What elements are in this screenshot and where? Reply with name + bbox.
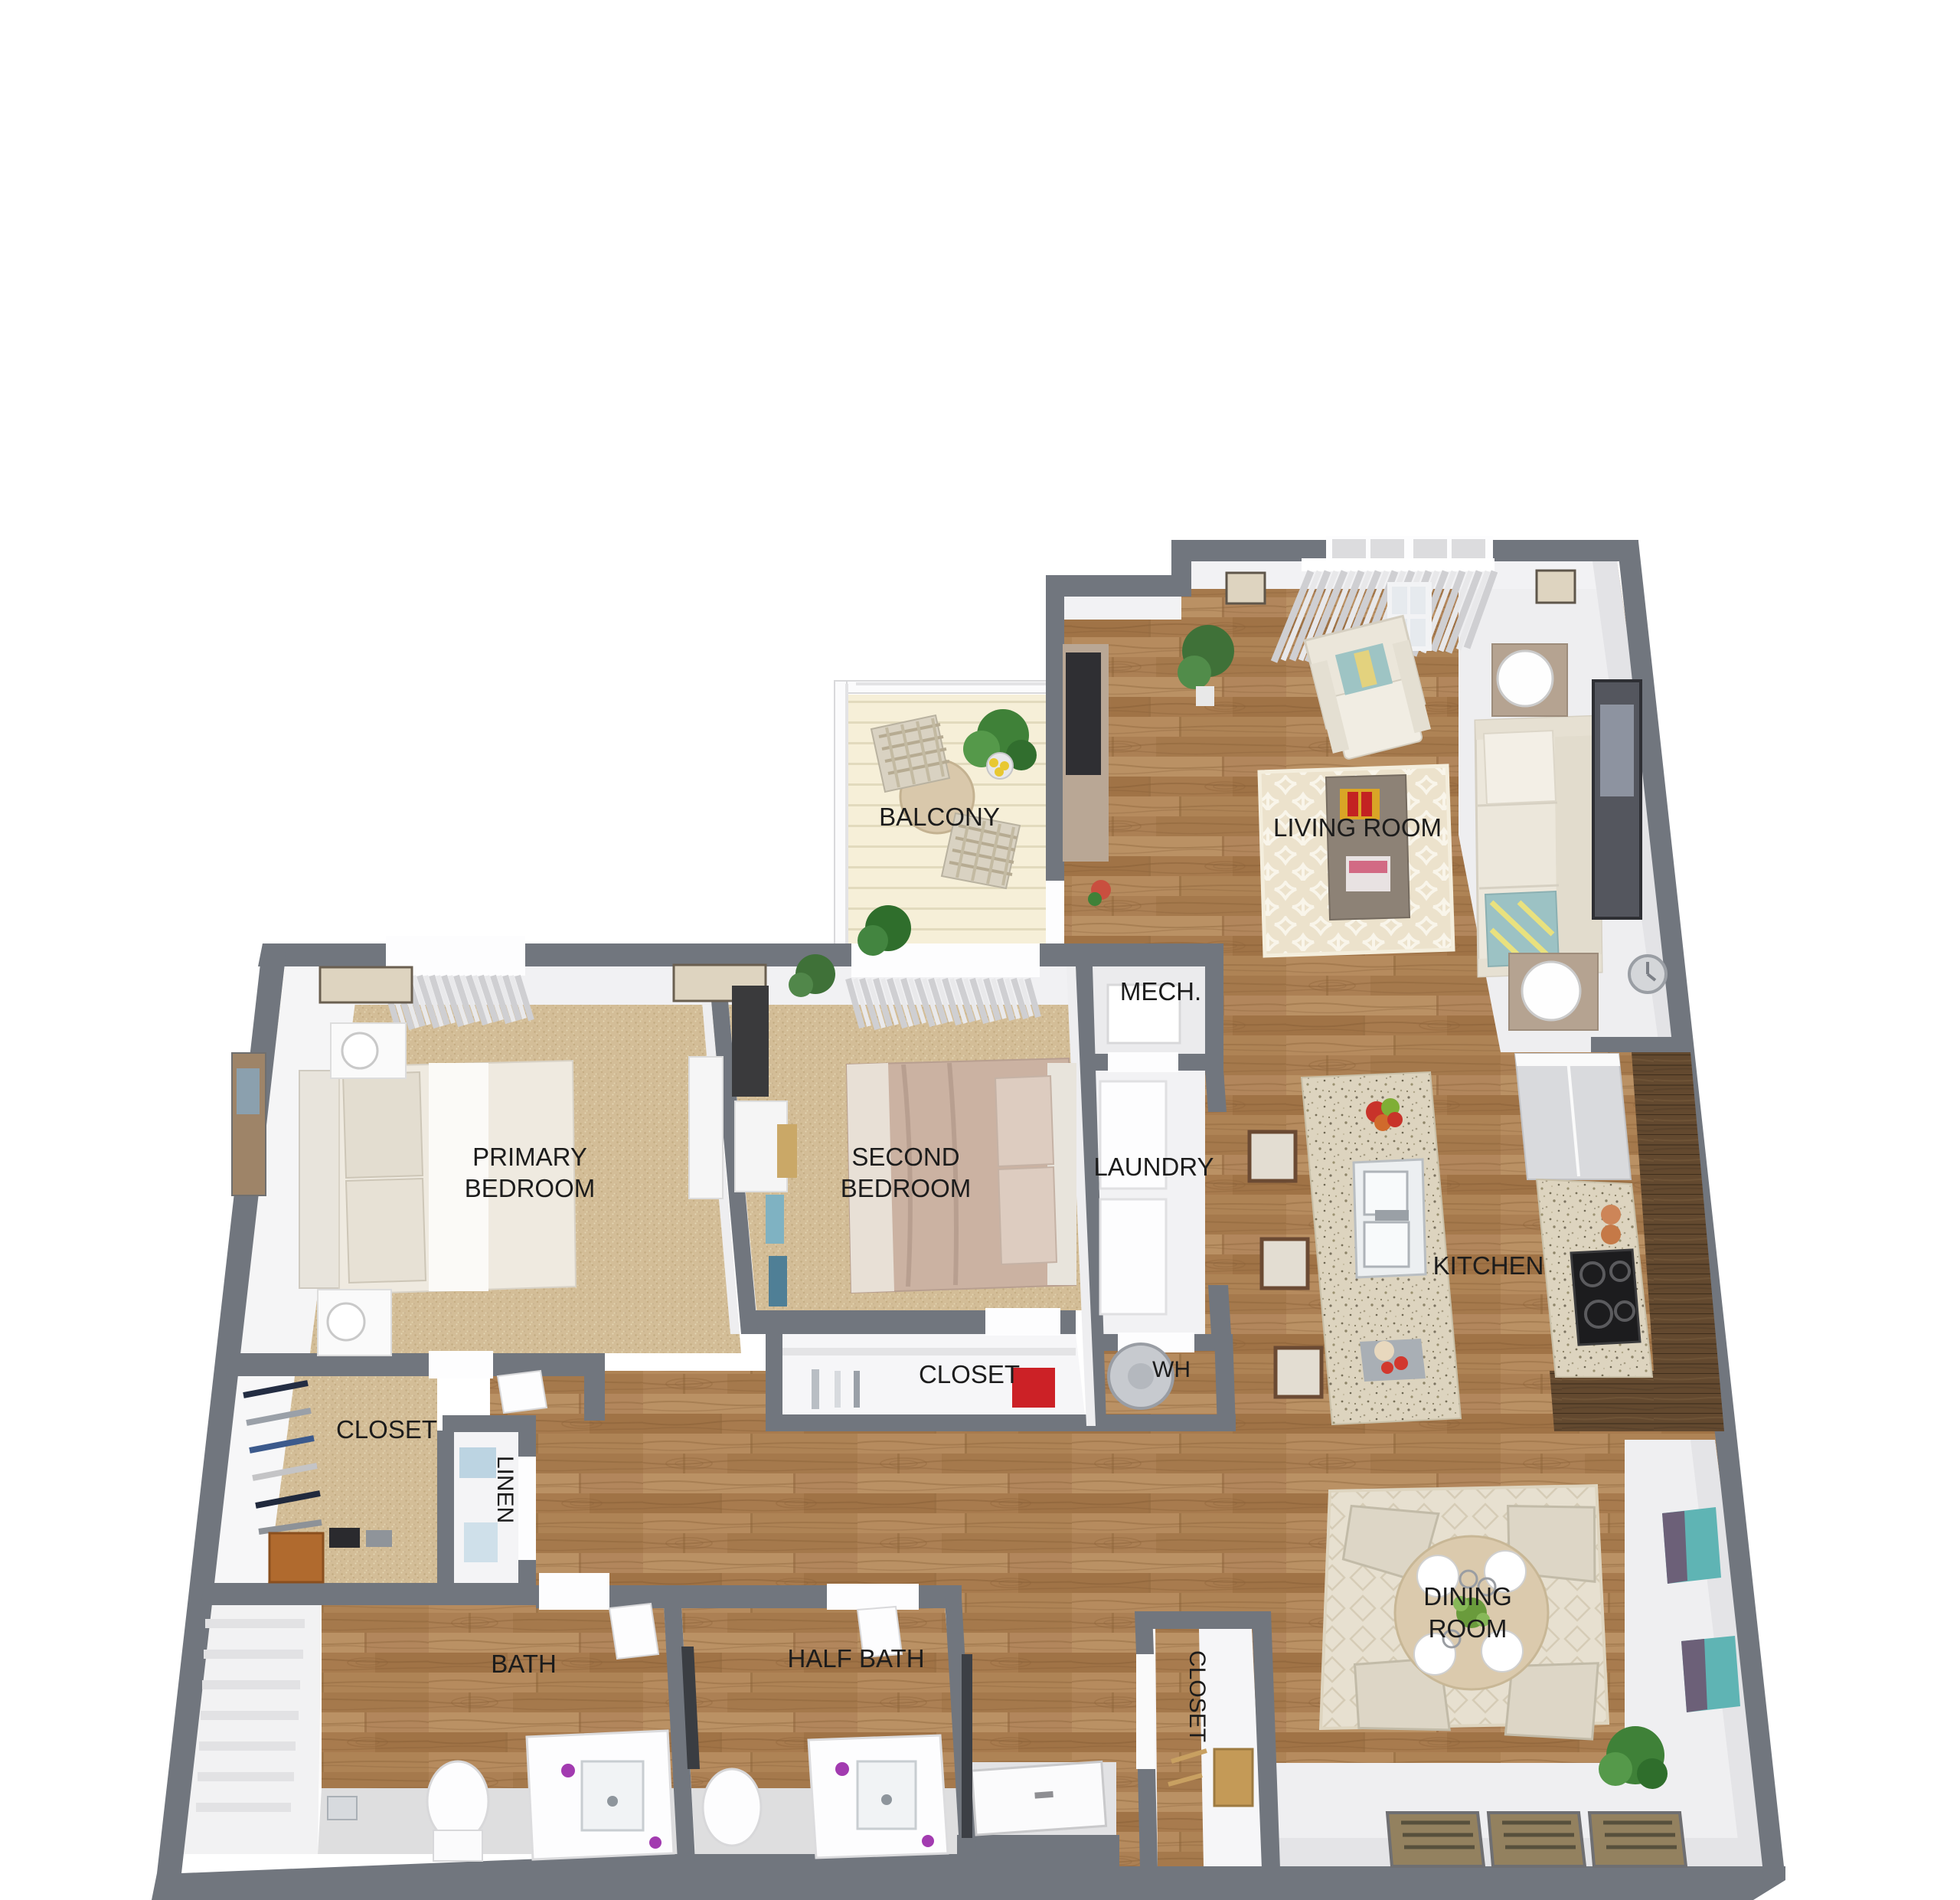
svg-text:BATH: BATH: [491, 1650, 557, 1678]
svg-text:WH: WH: [1152, 1357, 1191, 1382]
svg-text:BALCONY: BALCONY: [879, 803, 1000, 831]
svg-text:HALF BATH: HALF BATH: [787, 1644, 924, 1673]
svg-text:CLOSET: CLOSET: [919, 1360, 1020, 1388]
svg-text:LINEN: LINEN: [492, 1456, 518, 1523]
svg-text:CLOSET: CLOSET: [336, 1415, 437, 1444]
svg-text:CLOSET: CLOSET: [1184, 1650, 1210, 1742]
svg-text:PRIMARY: PRIMARY: [472, 1143, 587, 1171]
svg-text:LIVING ROOM: LIVING ROOM: [1273, 813, 1442, 842]
svg-text:MECH.: MECH.: [1120, 977, 1201, 1006]
svg-text:LAUNDRY: LAUNDRY: [1093, 1153, 1214, 1181]
svg-text:ROOM: ROOM: [1429, 1614, 1508, 1643]
svg-text:BEDROOM: BEDROOM: [841, 1174, 972, 1202]
svg-text:SECOND: SECOND: [851, 1143, 959, 1171]
svg-text:BEDROOM: BEDROOM: [465, 1174, 596, 1202]
svg-text:KITCHEN: KITCHEN: [1433, 1251, 1544, 1280]
svg-text:DINING: DINING: [1423, 1582, 1512, 1611]
